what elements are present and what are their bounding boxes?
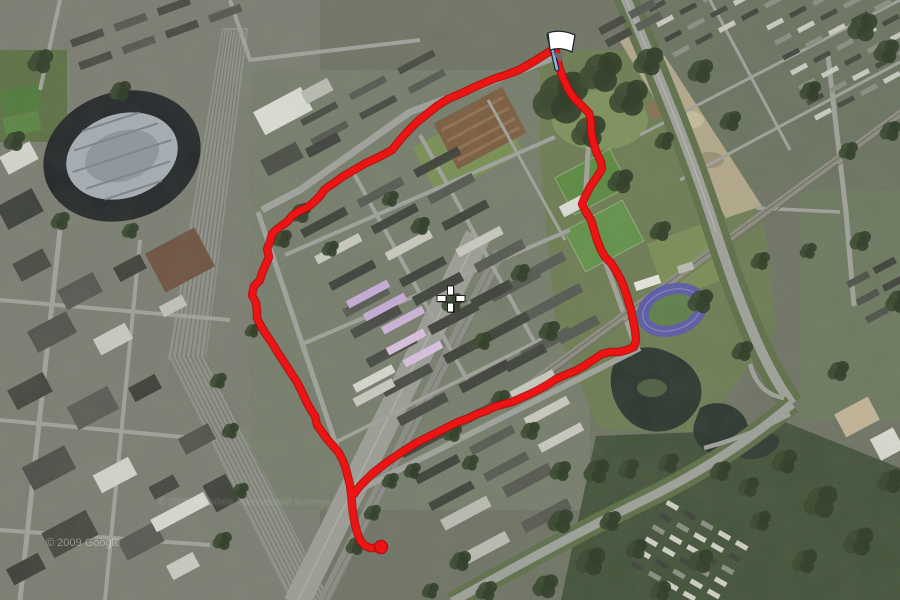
satellite-basemap: © 2009 Aerodata International Surveys © … xyxy=(0,0,900,600)
grain-overlay xyxy=(0,0,900,600)
flag-banner xyxy=(548,31,575,52)
map-viewport[interactable]: © 2009 Aerodata International Surveys © … xyxy=(0,0,900,600)
copyright-watermark: © 2009 Google xyxy=(46,537,120,549)
imagery-attribution-watermark: © 2009 Aerodata International Surveys xyxy=(158,497,330,508)
